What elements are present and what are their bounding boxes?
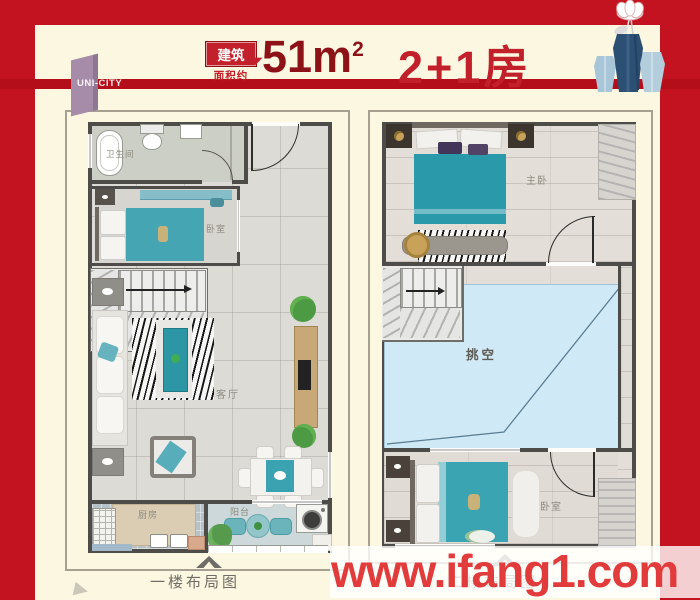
bed1-pillow-b xyxy=(100,236,126,260)
stairs2-fan-left xyxy=(383,268,400,338)
master-cushion-b xyxy=(468,144,488,155)
coffee-table-plant xyxy=(171,354,180,363)
master-plant-right xyxy=(516,131,526,141)
master-nightstand-right xyxy=(508,124,534,148)
kitchen-stove xyxy=(188,536,205,550)
tv xyxy=(298,360,311,390)
bed2-deco xyxy=(468,494,480,510)
bedroom1-wall-right-bottom xyxy=(237,252,240,266)
side-table-a xyxy=(92,278,124,306)
sofa-cushion-b xyxy=(96,356,124,394)
bedroom1-wall-right-top xyxy=(237,186,240,200)
p2-hall-floor xyxy=(621,266,632,450)
bed1-deco xyxy=(158,226,168,242)
living-label: 客厅 xyxy=(216,386,240,401)
caption1-chevron-icon xyxy=(196,556,222,568)
bedroom2-door-leaf xyxy=(593,452,595,497)
side-table-b xyxy=(92,448,124,476)
watermark-text: www.ifang1.com xyxy=(331,546,700,598)
sofa-cushion-c xyxy=(96,396,124,434)
stairs1-flight xyxy=(118,270,206,312)
floorplan-poster: UNI-CITY 建筑 面积约 51m2 2+1房 xyxy=(0,0,700,600)
side-table-a-dish xyxy=(102,288,113,295)
area-badge: 建筑 面积约 xyxy=(205,41,257,83)
master-nightstand-left xyxy=(386,124,412,148)
bathroom-wall-right xyxy=(244,122,248,184)
balcony-stool-b xyxy=(270,518,292,535)
bathroom-wall-stub xyxy=(232,180,244,184)
side-table-b-dish xyxy=(102,458,113,465)
p1-bath-window xyxy=(88,134,92,168)
master-cushion-a xyxy=(438,142,462,154)
stairs1-arrow-line xyxy=(126,289,184,291)
washer-drum xyxy=(302,510,322,530)
bedroom2-nightstand-bottom xyxy=(386,520,410,542)
master-gold-cushion xyxy=(404,232,430,258)
plant-top-icon xyxy=(290,296,316,322)
dining-chair-6 xyxy=(310,468,324,488)
dining-dish xyxy=(274,471,286,480)
kitchen-sink-a xyxy=(150,534,168,548)
toilet-bowl xyxy=(142,133,162,150)
bedroom1-wall-bottom xyxy=(92,263,240,266)
bed2-pillow-a xyxy=(416,464,440,503)
brand-name: UNI-CITY xyxy=(77,78,122,89)
bedroom2-label: 卧室 xyxy=(540,498,562,513)
dining-runner xyxy=(266,460,294,492)
master-wardrobe xyxy=(598,124,636,200)
kitchen-grid-cabinet xyxy=(92,508,116,548)
master-blanket-fold xyxy=(414,209,506,214)
area-value: 51m xyxy=(262,31,352,82)
washing-machine xyxy=(296,504,328,533)
stairs2-fan-bottom xyxy=(400,308,460,338)
p2-hall-divider xyxy=(618,266,621,450)
balcony-label: 阳台 xyxy=(230,505,250,518)
bedroom2-nightstand-top xyxy=(386,456,410,478)
washer-knob xyxy=(321,508,325,512)
balcony-slider xyxy=(252,500,322,504)
bed2-headboard xyxy=(410,460,415,544)
master-bed-headboard xyxy=(412,122,508,128)
nightstand2-dot-a xyxy=(394,464,401,469)
void-window-band xyxy=(430,448,520,452)
master-plant-left xyxy=(394,131,404,141)
plant-bottom-icon xyxy=(292,424,316,448)
corner-arrow-glyph xyxy=(73,582,90,599)
area-text: 51m2 xyxy=(262,31,364,83)
area-sup: 2 xyxy=(352,38,364,61)
vases-decoration xyxy=(585,0,675,95)
stairs2-arrow-line xyxy=(406,290,438,292)
master-blanket xyxy=(414,154,506,224)
p1-dining-window xyxy=(328,452,332,498)
nightstand2-dot-b xyxy=(394,528,401,533)
stairs2-arrow-head xyxy=(438,287,445,295)
bathroom-sink xyxy=(180,124,202,139)
area-badge-sub: 面积约 xyxy=(205,68,257,83)
bedroom2-fur-rug xyxy=(512,470,540,538)
bedroom1-chair xyxy=(210,198,224,207)
kitchen-label: 厨房 xyxy=(138,508,158,521)
lotus-flower-icon xyxy=(614,0,646,20)
bedroom1-label: 卧室 xyxy=(206,222,226,235)
bathroom-label: 卫生间 xyxy=(106,148,135,160)
master-door-leaf xyxy=(592,216,594,263)
bedroom1-nightstand xyxy=(95,189,115,205)
area-badge-top: 建筑 xyxy=(205,41,257,67)
coffee-table xyxy=(163,328,188,392)
kitchen-mosaic xyxy=(92,544,132,551)
bed1-headboard xyxy=(95,207,99,261)
balcony-table xyxy=(246,514,270,538)
void-label: 挑空 xyxy=(466,344,497,363)
balcony-railing xyxy=(208,545,328,552)
plan1-caption: 一楼布局图 xyxy=(150,571,240,592)
bedroom1-window xyxy=(237,200,240,252)
nightstand-dot xyxy=(102,195,108,199)
bedroom2-wardrobe xyxy=(598,478,636,548)
kitchen-sink-b xyxy=(170,534,188,548)
stairs2-flight xyxy=(400,268,462,308)
stairs1-arrow-head xyxy=(184,285,192,293)
bed2-pillow-b xyxy=(416,504,440,543)
bathroom-wall-bottom xyxy=(92,180,202,184)
master-label: 主卧 xyxy=(526,172,548,187)
balcony-table-plant xyxy=(254,522,262,530)
bedroom2-flowers xyxy=(465,530,495,543)
bed1-pillow-a xyxy=(100,210,126,235)
unit-type-text: 2+1房 xyxy=(398,31,531,96)
